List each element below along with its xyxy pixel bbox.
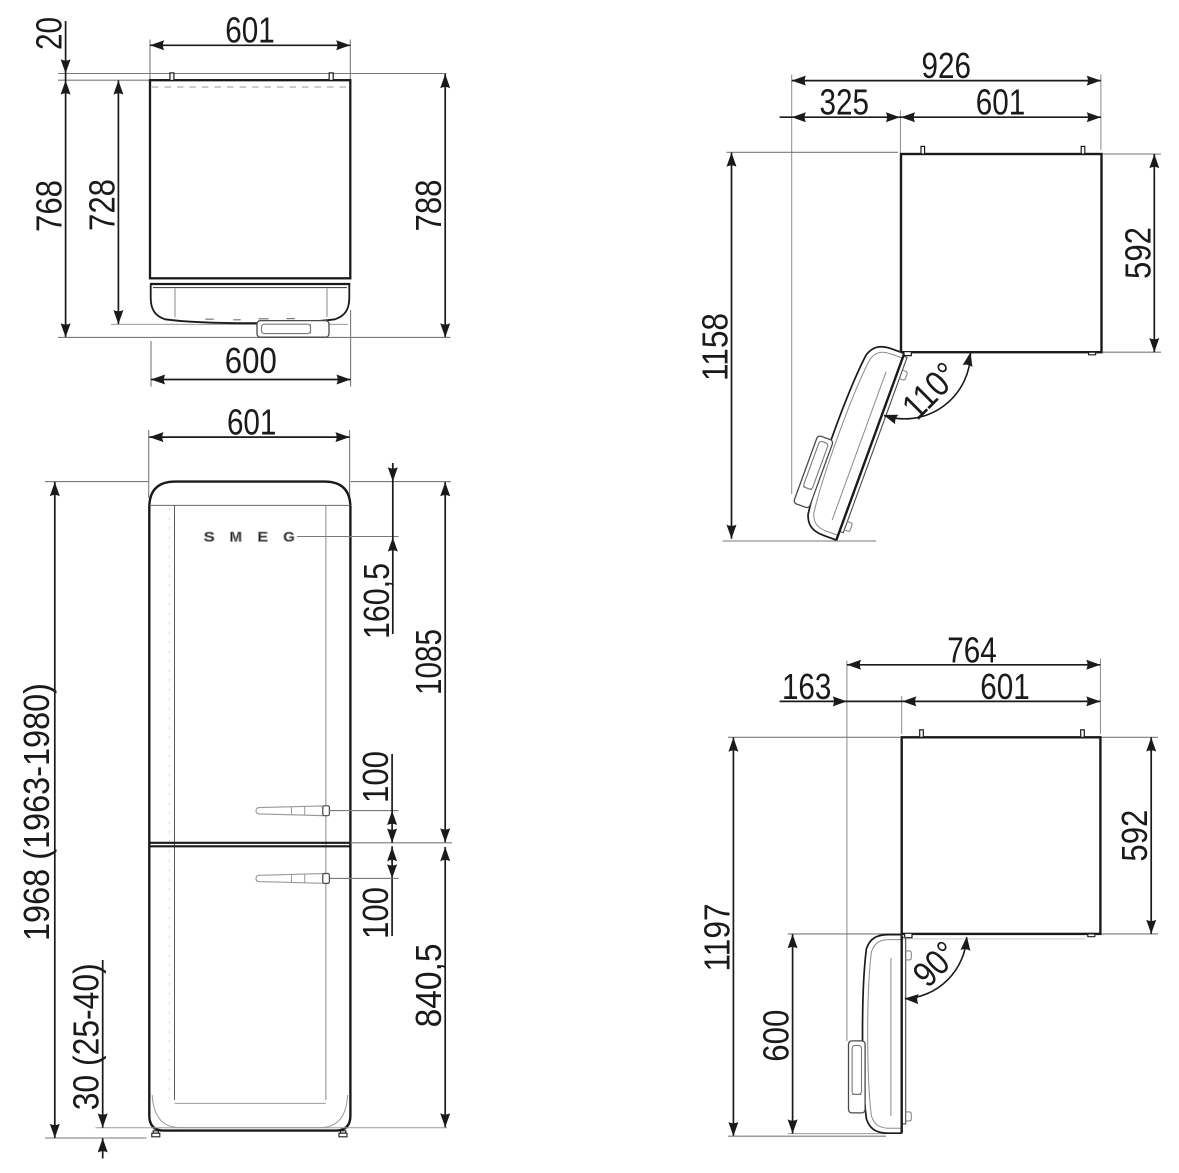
svg-text:325: 325 <box>820 82 870 123</box>
svg-text:30 (25-40): 30 (25-40) <box>66 963 107 1110</box>
svg-text:1158: 1158 <box>695 313 736 381</box>
svg-text:601: 601 <box>980 666 1030 707</box>
svg-text:600: 600 <box>225 340 277 381</box>
svg-text:840,5: 840,5 <box>408 943 449 1027</box>
svg-text:728: 728 <box>81 179 122 231</box>
svg-text:768: 768 <box>29 180 70 232</box>
svg-text:160,5: 160,5 <box>356 563 397 639</box>
svg-text:601: 601 <box>976 82 1026 123</box>
svg-text:926: 926 <box>922 45 972 86</box>
svg-text:20: 20 <box>29 17 70 50</box>
svg-text:S: S <box>204 529 215 544</box>
svg-text:601: 601 <box>225 10 275 51</box>
svg-text:788: 788 <box>408 180 449 232</box>
svg-text:1085: 1085 <box>408 629 449 695</box>
svg-text:601: 601 <box>227 401 277 442</box>
svg-text:600: 600 <box>756 1010 797 1062</box>
svg-text:1197: 1197 <box>696 904 737 972</box>
svg-text:100: 100 <box>355 751 396 803</box>
svg-text:M: M <box>230 529 243 544</box>
svg-text:E: E <box>258 529 269 544</box>
svg-text:764: 764 <box>947 629 997 670</box>
svg-text:100: 100 <box>355 887 396 939</box>
svg-text:G: G <box>283 529 295 544</box>
svg-text:1968 (1963-1980): 1968 (1963-1980) <box>16 683 57 941</box>
svg-text:592: 592 <box>1117 227 1158 279</box>
svg-text:163: 163 <box>782 666 832 707</box>
svg-text:592: 592 <box>1114 810 1155 862</box>
